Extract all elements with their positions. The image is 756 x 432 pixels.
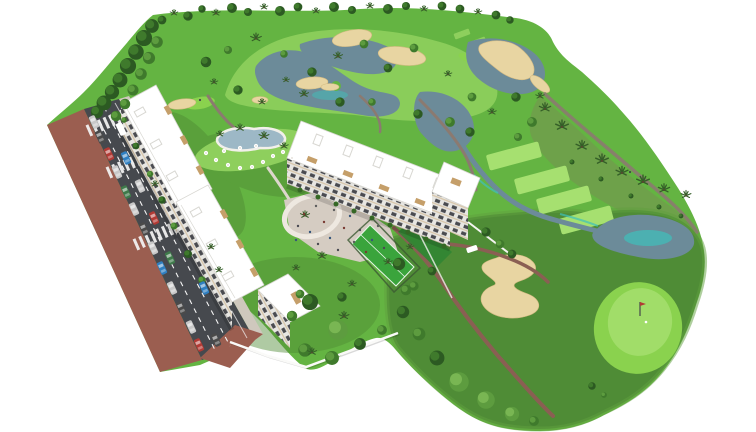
golfer-dot — [629, 171, 631, 173]
umbrella-icon — [271, 154, 275, 158]
tree-icon — [111, 111, 121, 121]
tree-icon — [529, 416, 539, 426]
tree-icon — [377, 325, 387, 335]
tree-icon — [410, 44, 419, 53]
tree-icon — [348, 6, 356, 14]
tree-icon — [127, 84, 138, 95]
tree-icon — [360, 40, 369, 49]
umbrella-icon — [238, 166, 242, 170]
umbrella-icon — [290, 156, 294, 160]
tree-icon — [601, 392, 607, 398]
umbrella-icon — [214, 158, 218, 162]
golfer-dot — [199, 99, 201, 101]
tree-icon — [402, 2, 410, 10]
swimming-pool — [217, 128, 285, 151]
tree-icon — [113, 73, 128, 88]
tree-icon — [133, 143, 140, 150]
tree-icon — [492, 11, 501, 20]
bush-icon — [599, 177, 604, 182]
tree-icon — [233, 85, 242, 94]
tree-icon — [120, 99, 130, 109]
umbrella-icon — [238, 146, 242, 150]
umbrella-icon — [250, 165, 254, 169]
tree-icon — [428, 267, 437, 276]
tree-icon — [158, 16, 167, 25]
tree-icon — [527, 117, 537, 127]
golf-ball — [645, 321, 648, 324]
bush-icon — [679, 214, 684, 219]
tree-icon — [449, 372, 469, 392]
tree-icon — [588, 382, 595, 389]
umbrella-icon — [226, 163, 230, 167]
tree-icon — [508, 250, 517, 259]
tree-icon — [198, 5, 205, 12]
tree-icon — [298, 343, 311, 356]
tree-icon — [302, 294, 318, 310]
tree-icon — [328, 320, 348, 340]
tree-icon — [151, 36, 163, 48]
umbrella-icon — [281, 150, 285, 154]
tree-icon — [121, 117, 127, 123]
tree-icon — [307, 67, 316, 76]
umbrella-icon — [222, 149, 226, 153]
tree-icon — [294, 3, 303, 12]
tree-icon — [413, 328, 426, 341]
bush-icon — [629, 194, 634, 199]
tree-icon — [438, 2, 447, 11]
tree-icon — [128, 44, 144, 60]
bush-icon — [570, 160, 575, 165]
tree-icon — [413, 109, 422, 118]
tree-icon — [296, 290, 305, 299]
architectural-render — [0, 0, 756, 432]
tree-icon — [280, 50, 288, 58]
tree-icon — [335, 97, 344, 106]
tree-icon — [143, 52, 155, 64]
tree-icon — [337, 292, 346, 301]
tree-icon — [506, 16, 513, 23]
umbrella-icon — [204, 151, 208, 155]
tree-icon — [227, 3, 237, 13]
tree-icon — [397, 306, 409, 318]
tree-icon — [183, 11, 192, 20]
tree-icon — [329, 2, 339, 12]
tree-icon — [383, 4, 393, 14]
tree-icon — [325, 351, 339, 365]
tree-icon — [393, 258, 405, 270]
tree-icon — [384, 64, 393, 73]
tree-icon — [514, 133, 522, 141]
tree-icon — [456, 5, 465, 14]
tree-icon — [481, 227, 490, 236]
tree-icon — [224, 46, 232, 54]
tree-icon — [201, 57, 212, 68]
tree-icon — [430, 351, 445, 366]
tree-icon — [275, 6, 285, 16]
umbrella-icon — [261, 160, 265, 164]
tree-icon — [171, 223, 178, 230]
tree-icon — [496, 240, 505, 249]
palm-tree-icon — [474, 8, 482, 14]
bush-icon — [657, 205, 662, 210]
tree-icon — [465, 127, 474, 136]
palm-tree-icon — [366, 2, 374, 8]
palm-tree-icon — [260, 3, 268, 9]
tree-icon — [120, 58, 136, 74]
tree-icon — [445, 117, 455, 127]
tree-icon — [135, 68, 147, 80]
tree-icon — [287, 311, 297, 321]
render-canvas — [0, 0, 756, 432]
tree-icon — [409, 281, 418, 290]
tree-icon — [511, 92, 520, 101]
tree-icon — [354, 338, 366, 350]
tree-icon — [368, 98, 376, 106]
tree-icon — [477, 391, 495, 409]
tree-icon — [136, 30, 152, 46]
tree-icon — [505, 407, 519, 421]
tree-icon — [158, 196, 165, 203]
tree-icon — [468, 93, 477, 102]
tree-icon — [244, 8, 252, 16]
umbrella-icon — [254, 144, 258, 148]
tree-icon — [184, 250, 192, 258]
tree-icon — [147, 171, 153, 177]
